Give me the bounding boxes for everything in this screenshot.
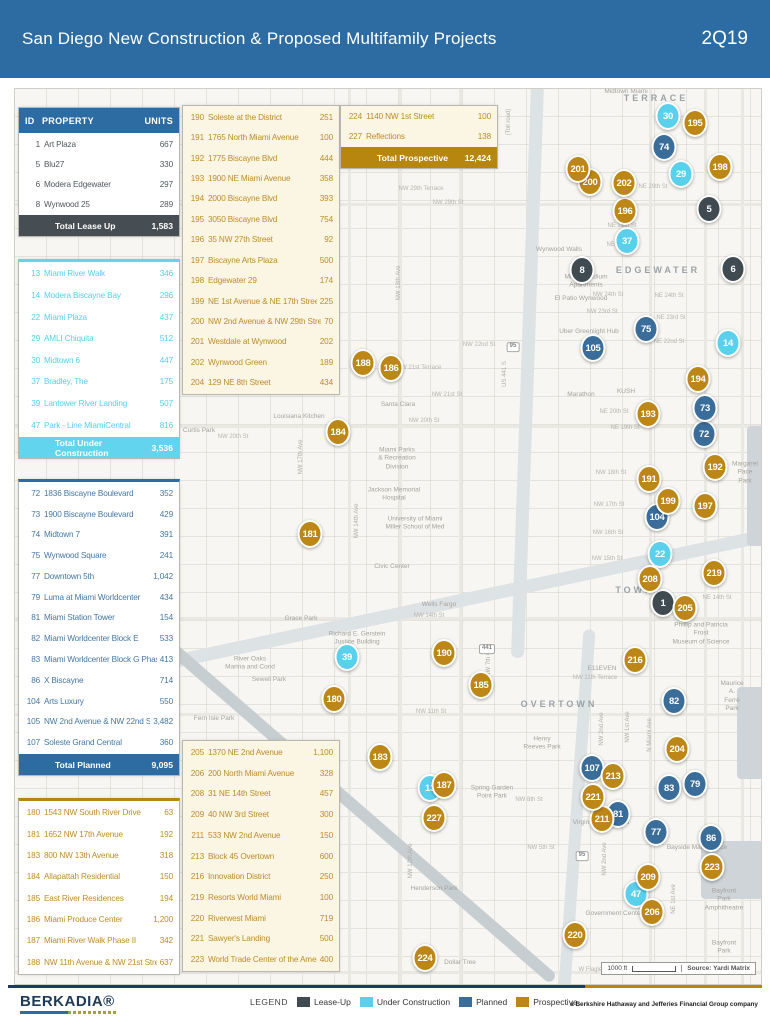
- row-units: 391: [160, 530, 173, 539]
- table-row: 29AMLI Chiquita512: [19, 328, 179, 350]
- total-label: Total Lease Up: [55, 221, 151, 231]
- row-id: 1: [25, 140, 40, 149]
- table-row: 1Art Plaza667: [19, 134, 179, 154]
- legend-item: Lease-Up: [297, 997, 351, 1007]
- row-id: 105: [25, 717, 40, 726]
- table-under-construction: 13Miami River Walk34614Modera Biscayne B…: [18, 259, 180, 459]
- row-id: 220: [189, 914, 204, 923]
- row-units: 241: [160, 551, 173, 560]
- map-label: NW 22nd St: [463, 342, 495, 350]
- table-row: 204129 NE 8th Street434: [183, 372, 339, 392]
- table-rows: 721836 Biscayne Boulevard352731900 Bisca…: [19, 482, 179, 754]
- row-property: Riverwest Miami: [208, 914, 317, 923]
- table-row: 201Westdale at Wynwood202: [183, 332, 339, 352]
- map-marker-83: 83: [657, 774, 682, 802]
- row-id: 14: [25, 291, 40, 300]
- table-row: 1953050 Biscayne Blvd754: [183, 209, 339, 229]
- map-label: University of Miami Miller School of Med: [386, 516, 445, 533]
- row-property: 129 NE 8th Street: [208, 378, 317, 387]
- row-property: Biscayne Arts Plaza: [208, 256, 317, 265]
- total-units: 9,095: [151, 760, 173, 770]
- map-marker-193: 193: [636, 400, 661, 428]
- table-row: 30Midtown 6447: [19, 350, 179, 372]
- logo-underline-olive: [68, 1011, 116, 1014]
- map-label: Phillip and Patricia Frost Museum of Sci…: [671, 621, 731, 646]
- table-row: 219Resorts World Miami100: [183, 887, 339, 908]
- total-row-planned: Total Planned 9,095: [19, 754, 179, 775]
- map-label: NE 22nd St: [654, 339, 685, 347]
- row-id: 82: [25, 634, 40, 643]
- map-marker-86: 86: [699, 824, 724, 852]
- table-row: 202Wynwood Green189: [183, 352, 339, 372]
- map-label: NW 5th St: [527, 845, 554, 853]
- table-row: 107Soleste Grand Central360: [19, 732, 179, 753]
- row-units: 457: [320, 789, 333, 798]
- row-id: 180: [25, 808, 40, 817]
- total-row-prospective: Total Prospective 12,424: [341, 147, 497, 168]
- table-row: 721836 Biscayne Boulevard352: [19, 483, 179, 504]
- row-id: 190: [189, 113, 204, 122]
- table-row: 105NW 2nd Avenue & NW 22nd Street3,482: [19, 711, 179, 732]
- map-label: NW 24th St: [593, 292, 624, 300]
- map-marker-221: 221: [581, 783, 606, 811]
- row-units: 194: [160, 894, 173, 903]
- map-marker-181: 181: [298, 520, 323, 548]
- map-marker-8: 8: [570, 256, 595, 284]
- row-id: 204: [189, 378, 204, 387]
- row-property: Midtown 7: [44, 530, 157, 539]
- table-row: 14Modera Biscayne Bay296: [19, 285, 179, 307]
- row-property: Reflections: [366, 132, 475, 141]
- map-label: NW 18th St: [596, 470, 627, 478]
- total-row-lease-up: Total Lease Up 1,583: [19, 215, 179, 236]
- map-marker-195: 195: [683, 109, 708, 137]
- row-id: 8: [25, 200, 40, 209]
- row-property: 1140 NW 1st Street: [366, 112, 475, 121]
- row-id: 22: [25, 313, 40, 322]
- total-units: 1,583: [151, 221, 173, 231]
- map-marker-74: 74: [652, 133, 677, 161]
- map-marker-198: 198: [708, 153, 733, 181]
- total-units: 3,536: [151, 443, 173, 453]
- water: [747, 426, 762, 546]
- table-row: 185East River Residences194: [19, 888, 179, 909]
- row-units: 400: [320, 955, 333, 964]
- table-row: 206200 North Miami Avenue328: [183, 763, 339, 784]
- row-property: AMLI Chiquita: [44, 334, 157, 343]
- map-marker-72: 72: [692, 420, 717, 448]
- row-property: 40 NW 3rd Street: [208, 810, 317, 819]
- row-property: NW 2nd Avenue & NW 29th Street: [208, 317, 321, 326]
- map-label: Spring Garden Point Park: [471, 785, 513, 802]
- footer-divider: [8, 985, 762, 988]
- total-units: 12,424: [465, 153, 491, 163]
- row-id: 184: [25, 872, 40, 881]
- scale-bar: [632, 966, 676, 972]
- row-units: 434: [160, 593, 173, 602]
- row-property: 1765 North Miami Avenue: [208, 133, 317, 142]
- row-units: 434: [320, 378, 333, 387]
- map-scale: 1000 ft Source: Yardi Matrix: [601, 962, 756, 975]
- row-id: 200: [189, 317, 204, 326]
- map-marker-79: 79: [683, 770, 708, 798]
- row-units: 150: [320, 831, 333, 840]
- map-label: Wynwood Walls: [536, 246, 582, 254]
- row-units: 346: [160, 269, 173, 278]
- table-row: 200NW 2nd Avenue & NW 29th Street70: [183, 311, 339, 331]
- col-units: UNITS: [145, 116, 174, 126]
- map-label: Jackson Memorial Hospital: [368, 487, 420, 504]
- map-marker-206: 206: [640, 898, 665, 926]
- row-property: NE 1st Avenue & NE 17th Street: [208, 297, 317, 306]
- map-marker-213: 213: [601, 762, 626, 790]
- row-units: 550: [160, 697, 173, 706]
- table-row: 22Miami Plaza437: [19, 306, 179, 328]
- row-id: 183: [25, 851, 40, 860]
- row-property: 3050 Biscayne Blvd: [208, 215, 317, 224]
- row-property: Wynwood Green: [208, 358, 317, 367]
- table-row: 213Block 45 Overtown600: [183, 846, 339, 867]
- table-row: 79Luma at Miami Worldcenter434: [19, 587, 179, 608]
- map-marker-194: 194: [686, 365, 711, 393]
- row-units: 70: [324, 317, 333, 326]
- table-row: 183800 NW 13th Avenue318: [19, 845, 179, 866]
- quarter-label: 2Q19: [702, 28, 748, 50]
- table-row: 1911765 North Miami Avenue100: [183, 127, 339, 147]
- table-row: 187Miami River Walk Phase II342: [19, 930, 179, 951]
- map-marker-39: 39: [335, 643, 360, 671]
- row-id: 29: [25, 334, 40, 343]
- legend-swatch: [516, 997, 529, 1007]
- row-id: 107: [25, 738, 40, 747]
- table-row: 1921775 Biscayne Blvd444: [183, 148, 339, 168]
- map-marker-192: 192: [703, 453, 728, 481]
- highway-i95: [511, 88, 544, 658]
- row-units: 512: [160, 334, 173, 343]
- map-marker-77: 77: [644, 818, 669, 846]
- table-row: 77Downtown 5th1,042: [19, 566, 179, 587]
- row-id: 83: [25, 655, 40, 664]
- row-property: Wynwood Square: [44, 551, 157, 560]
- row-units: 289: [160, 200, 173, 209]
- map-marker-197: 197: [693, 492, 718, 520]
- row-units: 444: [320, 154, 333, 163]
- row-id: 191: [189, 133, 204, 142]
- table-row: 37Bradley, The175: [19, 371, 179, 393]
- map-marker-5: 5: [697, 195, 722, 223]
- map-marker-30: 30: [656, 102, 681, 130]
- row-id: 195: [189, 215, 204, 224]
- row-units: 202: [320, 337, 333, 346]
- row-property: 2000 Biscayne Blvd: [208, 194, 317, 203]
- map-label: Santa Clara: [381, 401, 415, 409]
- row-id: 86: [25, 676, 40, 685]
- map-label: NW 14th Ave: [354, 504, 362, 539]
- map-label: TERRACE: [624, 93, 689, 105]
- map-marker-75: 75: [634, 315, 659, 343]
- map-marker-220: 220: [563, 921, 588, 949]
- row-property: 35 NW 27th Street: [208, 235, 321, 244]
- map-label: EDGEWATER: [616, 265, 700, 277]
- row-property: 800 NW 13th Avenue: [44, 851, 157, 860]
- row-units: 437: [160, 313, 173, 322]
- row-units: 63: [164, 808, 173, 817]
- row-property: Soleste at the District: [208, 113, 317, 122]
- row-property: Miami Worldcenter Block E: [44, 634, 157, 643]
- table-row: 199NE 1st Avenue & NE 17th Street225: [183, 291, 339, 311]
- row-property: Lantower River Landing: [44, 399, 157, 408]
- row-units: 192: [160, 830, 173, 839]
- row-property: 1652 NW 17th Avenue: [44, 830, 157, 839]
- row-property: Bradley, The: [44, 377, 157, 386]
- table-prospective-4: 2241140 NW 1st Street100227Reflections13…: [340, 105, 498, 169]
- map-label: Curtis Park: [183, 427, 215, 435]
- row-id: 219: [189, 893, 204, 902]
- row-id: 213: [189, 852, 204, 861]
- row-id: 104: [25, 697, 40, 706]
- row-units: 342: [160, 936, 173, 945]
- row-property: Sawyer's Landing: [208, 934, 317, 943]
- row-units: 500: [320, 934, 333, 943]
- row-property: Edgewater 29: [208, 276, 317, 285]
- map-marker-224: 224: [413, 944, 438, 972]
- water: [737, 687, 762, 779]
- row-id: 37: [25, 377, 40, 386]
- row-units: 251: [320, 113, 333, 122]
- table-row: 82Miami Worldcenter Block E533: [19, 628, 179, 649]
- row-units: 174: [320, 276, 333, 285]
- row-id: 206: [189, 769, 204, 778]
- row-units: 637: [160, 958, 173, 967]
- map-marker-6: 6: [721, 255, 746, 283]
- highway-shield: 95: [507, 342, 520, 352]
- map-label: NW 29th Terrace: [399, 186, 444, 194]
- row-property: Miami Plaza: [44, 313, 157, 322]
- map-label: Sewell Park: [252, 676, 286, 684]
- row-id: 73: [25, 510, 40, 519]
- legend-item: Planned: [459, 997, 507, 1007]
- map-label: NE 24th St: [654, 293, 683, 301]
- map-marker-184: 184: [326, 418, 351, 446]
- table-row: 20940 NW 3rd Street300: [183, 804, 339, 825]
- map-source: Source: Yardi Matrix: [681, 965, 750, 972]
- map-marker-216: 216: [623, 646, 648, 674]
- table-prospective-1: 1801543 NW South River Drive631811652 NW…: [18, 798, 180, 975]
- row-id: 186: [25, 915, 40, 924]
- row-property: Modera Biscayne Bay: [44, 291, 157, 300]
- map-label: Louisiana Kitchen: [273, 413, 324, 421]
- row-property: 200 North Miami Avenue: [208, 769, 317, 778]
- table-row: 6Modera Edgewater297: [19, 174, 179, 194]
- row-property: Downtown 5th: [44, 572, 150, 581]
- map-marker-202: 202: [612, 169, 637, 197]
- map-label: NW 17th Ave: [298, 440, 306, 475]
- row-units: 189: [320, 358, 333, 367]
- map-label: El Patio Wynwood: [555, 295, 608, 303]
- row-id: 30: [25, 356, 40, 365]
- row-property: Allapattah Residential: [44, 872, 157, 881]
- row-units: 1,042: [153, 572, 173, 581]
- table-row: 83Miami Worldcenter Block G Phase II413: [19, 649, 179, 670]
- row-property: NW 2nd Avenue & NW 22nd Street: [44, 717, 150, 726]
- map-marker-199: 199: [656, 487, 681, 515]
- row-id: 5: [25, 160, 40, 169]
- row-units: 100: [320, 893, 333, 902]
- map-marker-191: 191: [637, 465, 662, 493]
- row-id: 72: [25, 489, 40, 498]
- row-id: 185: [25, 894, 40, 903]
- col-property: PROPERTY: [42, 116, 145, 126]
- table-row: 188NW 11th Avenue & NW 21st Street637: [19, 952, 179, 973]
- row-units: 352: [160, 489, 173, 498]
- row-units: 300: [320, 810, 333, 819]
- legend-title: LEGEND: [250, 997, 288, 1007]
- table-row: 223World Trade Center of the Americas400: [183, 949, 339, 970]
- map-label: Miami Parks & Recreation Division: [378, 446, 416, 471]
- map-label: NW 1st Ave: [625, 711, 633, 742]
- legend-label: Planned: [476, 997, 507, 1007]
- map-label: NE 23rd St: [656, 315, 685, 323]
- row-property: 1775 Biscayne Blvd: [208, 154, 317, 163]
- row-id: 39: [25, 399, 40, 408]
- map-marker-185: 185: [469, 671, 494, 699]
- highway-shield: 441: [479, 644, 495, 654]
- footer-tagline: a Berkshire Hathaway and Jefferies Finan…: [570, 1001, 758, 1008]
- table-row: 190Soleste at the District251: [183, 107, 339, 127]
- row-id: 6: [25, 180, 40, 189]
- map-marker-186: 186: [379, 354, 404, 382]
- table-row: 227Reflections138: [341, 127, 497, 147]
- table-row: 104Arts Luxury550: [19, 691, 179, 712]
- map-label: NW 2nd Ave: [602, 842, 610, 875]
- row-property: Miami Produce Center: [44, 915, 150, 924]
- row-property: Miami River Walk: [44, 269, 157, 278]
- row-property: Miami River Walk Phase II: [44, 936, 157, 945]
- row-id: 193: [189, 174, 204, 183]
- table-row: 2051370 NE 2nd Avenue1,100: [183, 742, 339, 763]
- row-property: Miami Worldcenter Block G Phase II: [44, 655, 157, 664]
- row-property: 1370 NE 2nd Avenue: [208, 748, 310, 757]
- legend-item: Under Construction: [360, 997, 450, 1007]
- row-property: 1900 NE Miami Avenue: [208, 174, 317, 183]
- map-marker-37: 37: [615, 227, 640, 255]
- row-id: 187: [25, 936, 40, 945]
- table-rows: 190Soleste at the District2511911765 Nor…: [183, 106, 339, 394]
- row-property: Resorts World Miami: [208, 893, 317, 902]
- table-row: 186Miami Produce Center1,200: [19, 909, 179, 930]
- map-marker-180: 180: [322, 685, 347, 713]
- table-row: 8Wynwood 25289: [19, 194, 179, 214]
- table-row: 211533 NW 2nd Avenue150: [183, 825, 339, 846]
- table-rows: 2241140 NW 1st Street100227Reflections13…: [341, 106, 497, 147]
- berkadia-wordmark: BERKADIA®: [20, 993, 116, 1010]
- row-property: Westdale at Wynwood: [208, 337, 317, 346]
- map-marker-190: 190: [432, 639, 457, 667]
- row-property: East River Residences: [44, 894, 157, 903]
- row-id: 227: [347, 132, 362, 141]
- legend-label: Under Construction: [377, 997, 450, 1007]
- map-label: River Oaks Marina and Cond: [225, 656, 275, 673]
- table-row: 39Lantower River Landing507: [19, 393, 179, 415]
- row-id: 192: [189, 154, 204, 163]
- table-row: 197Biscayne Arts Plaza500: [183, 250, 339, 270]
- row-property: Soleste Grand Central: [44, 738, 157, 747]
- row-units: 3,482: [153, 717, 173, 726]
- row-property: Midtown 6: [44, 356, 157, 365]
- map-marker-204: 204: [665, 735, 690, 763]
- map-label: NW 16th St: [593, 530, 624, 538]
- table-row: 1801543 NW South River Drive63: [19, 802, 179, 823]
- table-rows: 1801543 NW South River Drive631811652 NW…: [19, 801, 179, 974]
- map-label: KUSH: [617, 388, 635, 396]
- table-rows: 2051370 NE 2nd Avenue1,100206200 North M…: [183, 741, 339, 971]
- row-id: 208: [189, 789, 204, 798]
- row-id: 224: [347, 112, 362, 121]
- total-row-under-construction: Total Under Construction 3,536: [19, 437, 179, 458]
- row-property: Block 45 Overtown: [208, 852, 317, 861]
- row-units: 100: [478, 112, 491, 121]
- row-property: Miami Station Tower: [44, 613, 157, 622]
- table-row: 1931900 NE Miami Avenue358: [183, 168, 339, 188]
- row-property: Innovation District: [208, 872, 317, 881]
- row-id: 198: [189, 276, 204, 285]
- map-label: Civic Center: [374, 563, 409, 571]
- row-id: 79: [25, 593, 40, 602]
- header: San Diego New Construction & Proposed Mu…: [0, 0, 770, 78]
- map-marker-73: 73: [693, 394, 718, 422]
- row-id: 216: [189, 872, 204, 881]
- map-label: US 441 S: [502, 361, 510, 387]
- row-property: Blu27: [44, 160, 157, 169]
- road: [348, 89, 351, 984]
- map-label: NE 29th St: [638, 184, 667, 192]
- table-row: 13Miami River Walk346: [19, 263, 179, 285]
- row-units: 92: [324, 235, 333, 244]
- total-label: Total Planned: [55, 760, 151, 770]
- row-units: 600: [320, 852, 333, 861]
- road: [459, 89, 462, 984]
- row-units: 714: [160, 676, 173, 685]
- table-row: 1811652 NW 17th Avenue192: [19, 823, 179, 844]
- row-property: 1543 NW South River Drive: [44, 808, 161, 817]
- map-marker-205: 205: [673, 594, 698, 622]
- row-id: 202: [189, 358, 204, 367]
- map-label: Bayfront Park: [706, 940, 743, 957]
- row-property: Modera Edgewater: [44, 180, 157, 189]
- row-units: 225: [320, 297, 333, 306]
- map-label: NW 21st St: [432, 392, 462, 400]
- map-label: Henry Reeves Park: [523, 736, 560, 753]
- row-id: 74: [25, 530, 40, 539]
- map-marker-187: 187: [432, 771, 457, 799]
- table-planned: 721836 Biscayne Boulevard352731900 Bisca…: [18, 479, 180, 776]
- row-id: 211: [189, 831, 204, 840]
- row-id: 75: [25, 551, 40, 560]
- row-property: Art Plaza: [44, 140, 157, 149]
- row-property: Park - Line MiamiCentral: [44, 421, 157, 430]
- row-units: 413: [160, 655, 173, 664]
- row-units: 328: [320, 769, 333, 778]
- row-units: 500: [320, 256, 333, 265]
- total-label: Total Under Construction: [55, 438, 151, 458]
- map-marker-105: 105: [581, 334, 606, 362]
- row-id: 194: [189, 194, 204, 203]
- row-property: 533 NW 2nd Avenue: [208, 831, 317, 840]
- map-marker-1: 1: [651, 589, 676, 617]
- row-units: 447: [160, 356, 173, 365]
- row-id: 199: [189, 297, 204, 306]
- row-property: NW 11th Avenue & NW 21st Street: [44, 958, 157, 967]
